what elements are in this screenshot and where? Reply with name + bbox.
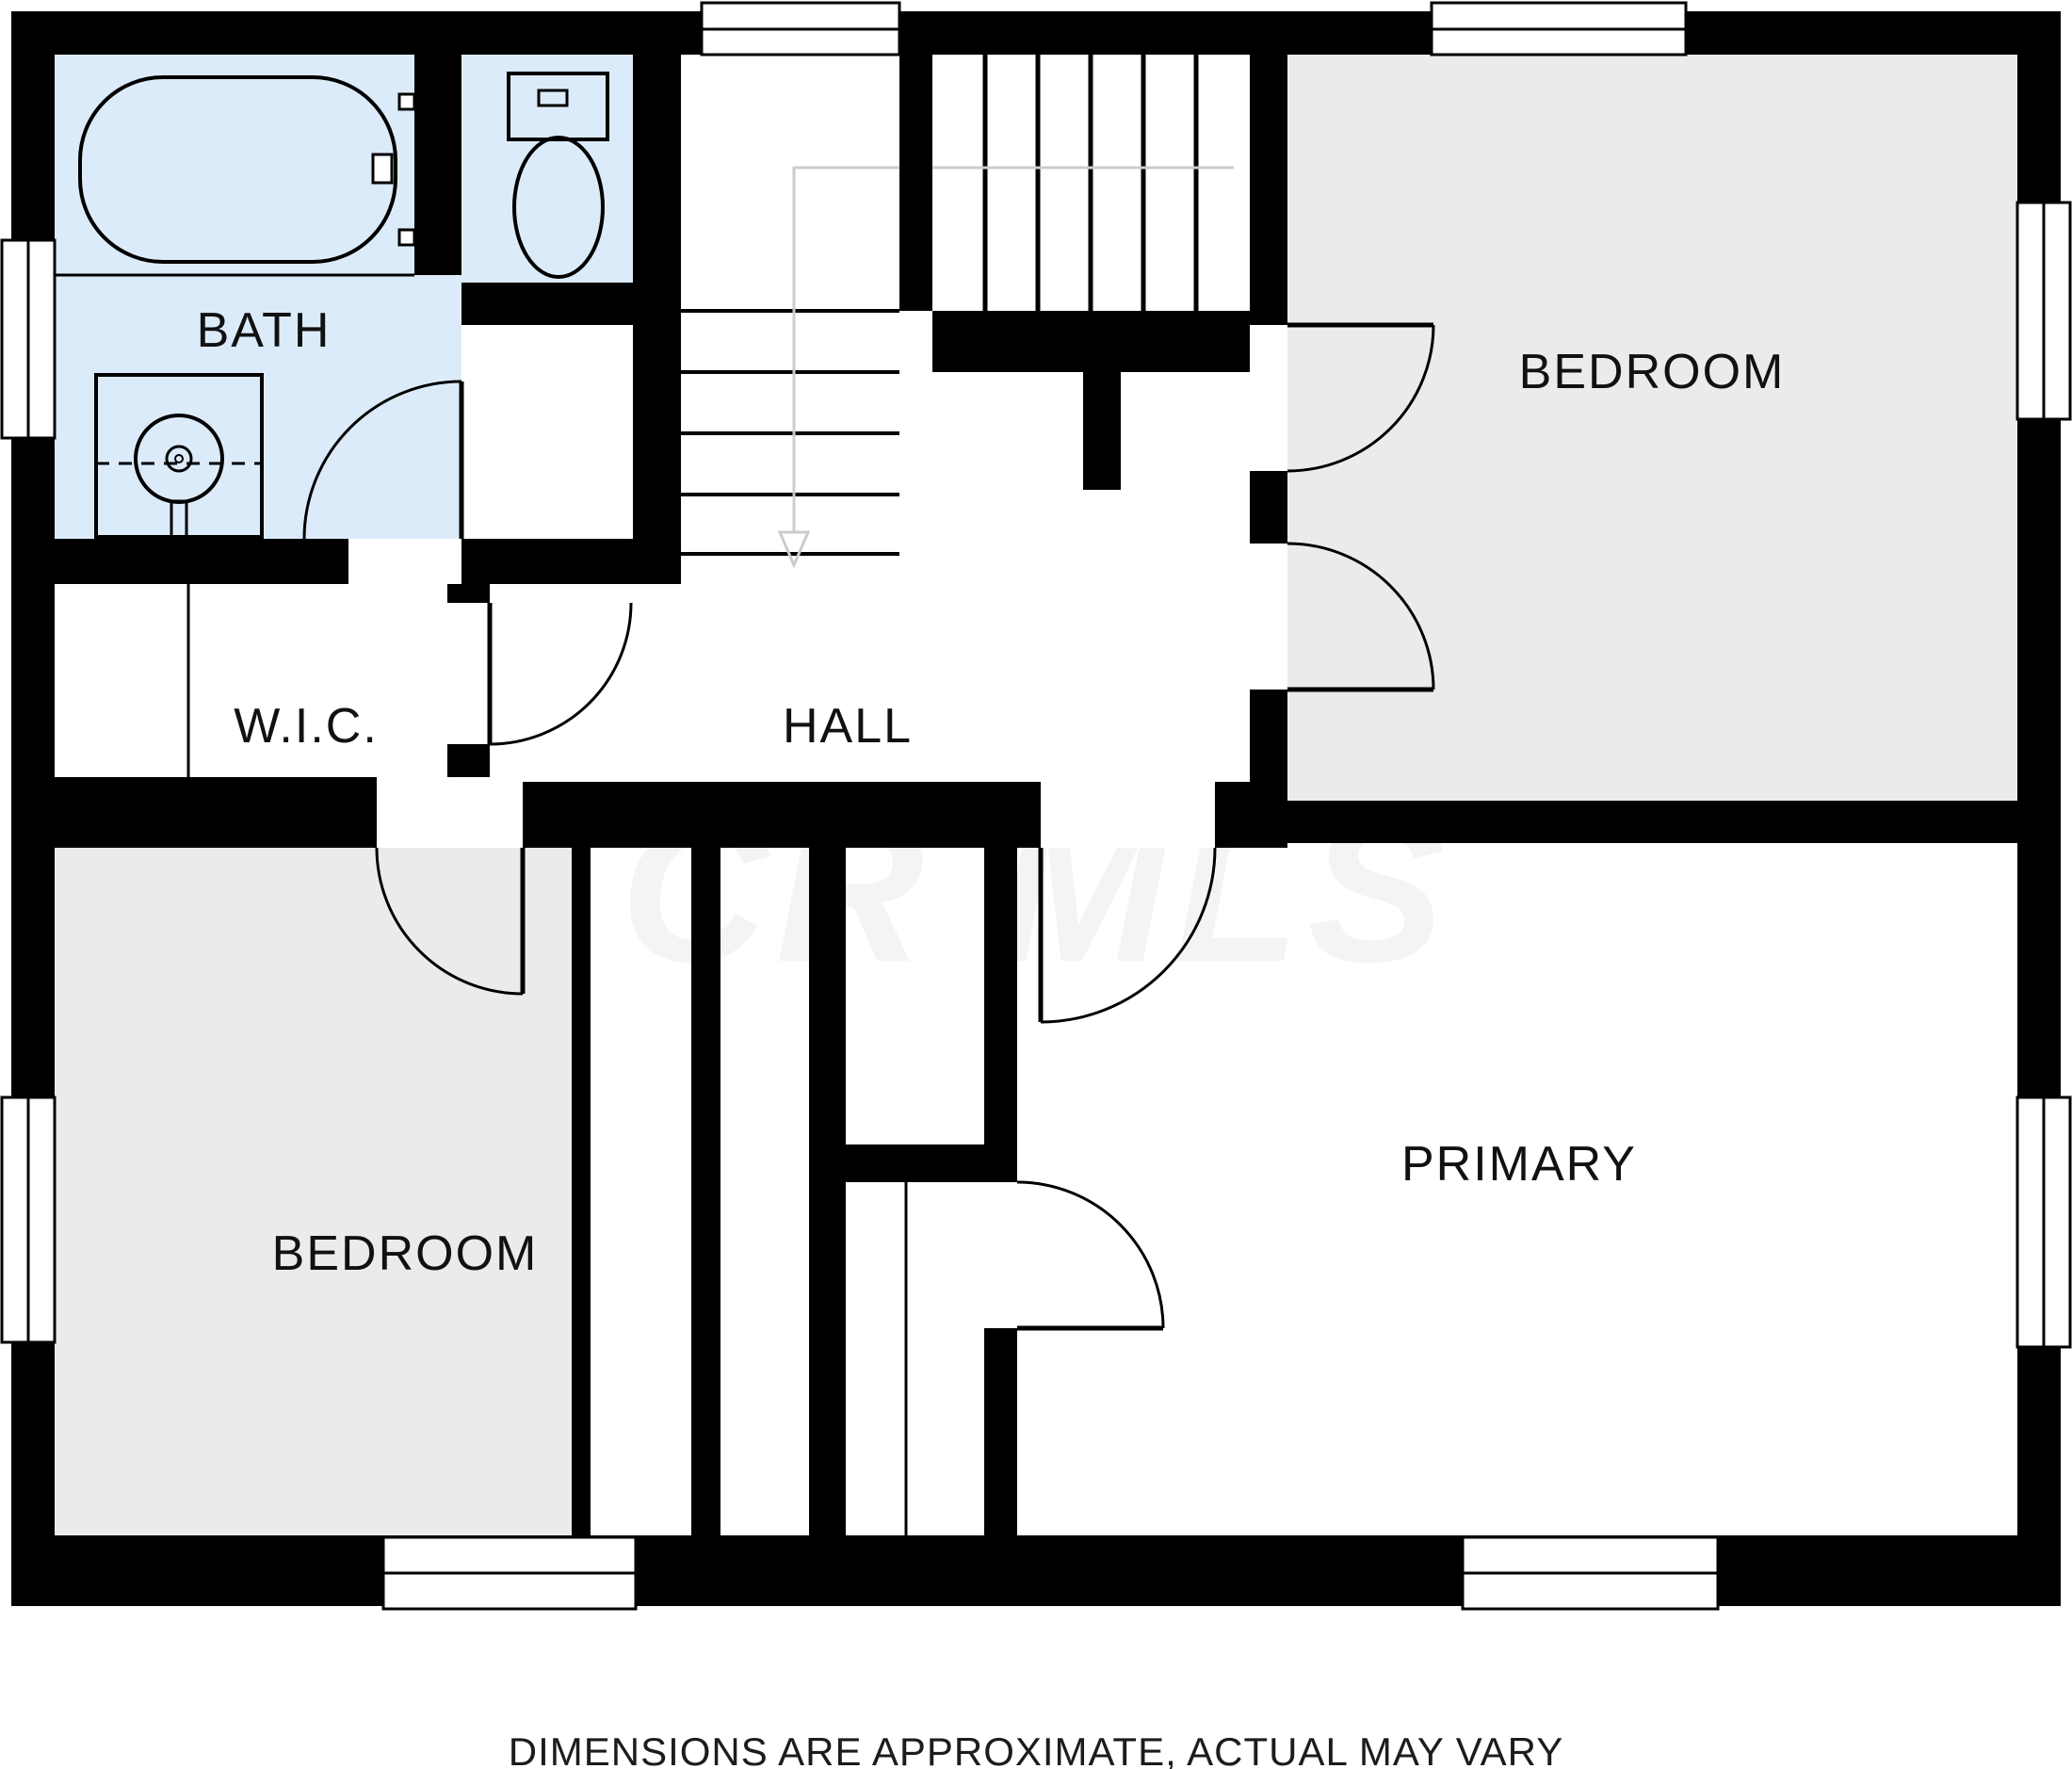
disclaimer-caption: DIMENSIONS ARE APPROXIMATE, ACTUAL MAY V… — [509, 1729, 1564, 1769]
window — [2017, 1097, 2070, 1347]
doorway-gap — [1041, 782, 1215, 848]
doorway-gap — [348, 539, 461, 584]
stairwell-floor — [681, 55, 1250, 558]
wall-segment — [461, 539, 681, 584]
wall-segment — [11, 11, 2061, 55]
wall-segment — [447, 744, 490, 777]
wall-segment — [984, 1328, 1017, 1535]
wall-segment — [11, 1535, 2061, 1606]
bath-floor — [55, 55, 461, 539]
window — [702, 3, 899, 55]
wall-segment — [1083, 372, 1121, 490]
room-label-primary: PRIMARY — [1401, 1137, 1637, 1192]
wall-segment — [899, 55, 932, 311]
doorway-gap — [1250, 325, 1287, 471]
window — [383, 1537, 636, 1609]
wall-segment — [447, 584, 490, 603]
wall-segment — [984, 848, 1017, 1182]
window — [2, 240, 55, 438]
window — [2017, 203, 2070, 419]
wall-segment — [846, 1144, 984, 1182]
wall-segment — [11, 539, 348, 584]
wall-segment — [414, 55, 461, 275]
window — [1463, 1537, 1718, 1609]
room-label-bedroom-top: BEDROOM — [1519, 345, 1786, 399]
wall-segment — [1250, 471, 1287, 544]
window — [2, 1097, 55, 1342]
tub-faucet-icon — [373, 154, 392, 183]
doorway-gap — [984, 1182, 1017, 1328]
room-label-hall: HALL — [783, 699, 913, 754]
wall-segment — [1215, 782, 1287, 848]
room-label-bath: BATH — [197, 303, 332, 358]
bedroom-left-floor — [55, 848, 572, 1535]
floor-plan-drawing: CR MLS — [0, 0, 2072, 1769]
doorway-gap — [1250, 544, 1287, 690]
wall-segment — [1287, 801, 2017, 843]
floor-plan-page: CR MLS — [0, 0, 2072, 1769]
wall-segment — [572, 848, 591, 1535]
wall-segment — [1250, 55, 1287, 325]
wall-segment — [691, 848, 720, 1535]
wall-segment — [809, 848, 846, 1535]
window — [1432, 3, 1686, 55]
doorway-gap — [447, 603, 490, 744]
wall-segment — [523, 782, 1041, 848]
room-label-wic: W.I.C. — [234, 699, 379, 754]
doorway-gap — [377, 777, 523, 848]
wall-segment — [11, 777, 377, 848]
wall-segment — [461, 283, 681, 325]
room-label-bedroom-left: BEDROOM — [272, 1226, 539, 1281]
wall-segment — [932, 311, 1250, 372]
